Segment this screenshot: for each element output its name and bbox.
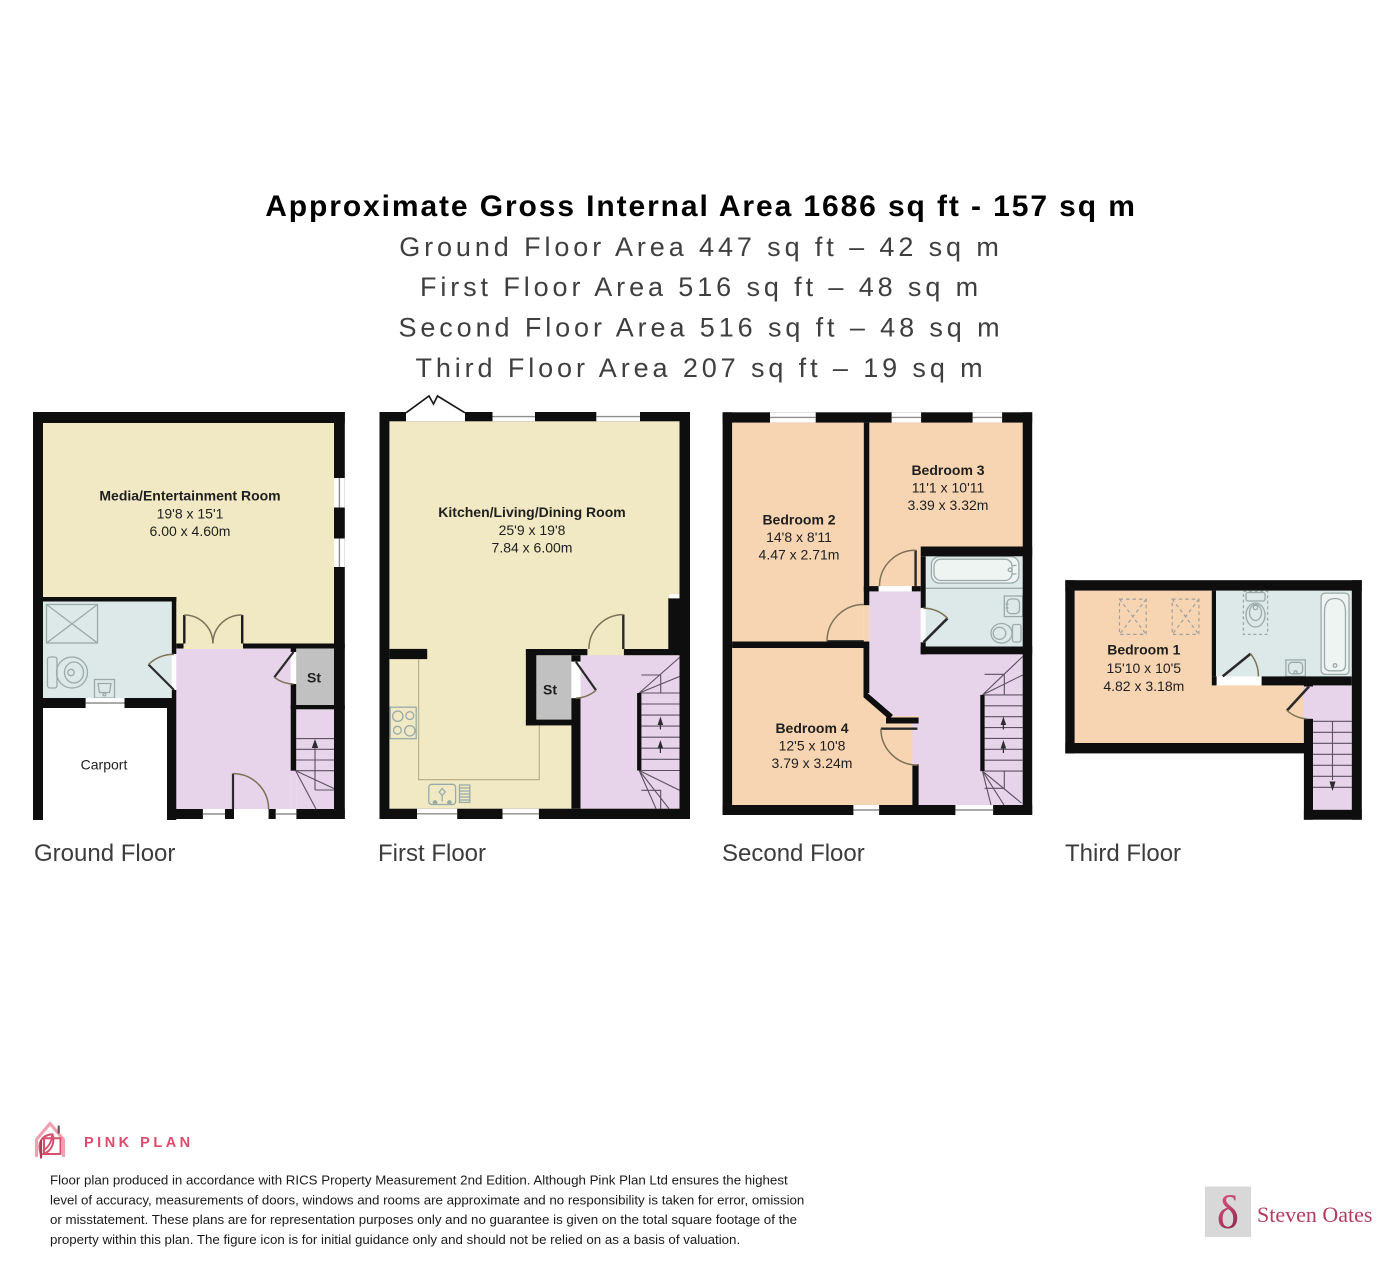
svg-text:15'10 x 10'5: 15'10 x 10'5 <box>1106 660 1181 676</box>
svg-text:14'8 x 8'11: 14'8 x 8'11 <box>766 529 832 545</box>
svg-text:δ: δ <box>1217 1187 1239 1239</box>
svg-text:First Floor: First Floor <box>378 840 486 867</box>
svg-text:7.84 x 6.00m: 7.84 x 6.00m <box>492 540 573 556</box>
svg-text:Third Floor: Third Floor <box>1065 840 1181 867</box>
svg-text:3.79 x 3.24m: 3.79 x 3.24m <box>772 755 853 771</box>
svg-text:Bedroom 4: Bedroom 4 <box>775 720 848 736</box>
svg-text:Carport: Carport <box>81 757 128 773</box>
svg-text:Floor plan produced in accorda: Floor plan produced in accordance with R… <box>50 1173 788 1188</box>
svg-text:Kitchen/Living/Dining Room: Kitchen/Living/Dining Room <box>438 504 625 520</box>
svg-text:PINK PLAN: PINK PLAN <box>84 1135 194 1151</box>
svg-text:Second Floor Area 516 sq ft –: Second Floor Area 516 sq ft – 48 sq m <box>398 313 1003 343</box>
svg-text:Bedroom 1: Bedroom 1 <box>1107 642 1180 658</box>
svg-text:St: St <box>307 670 321 686</box>
svg-text:Media/Entertainment Room: Media/Entertainment Room <box>99 488 280 504</box>
svg-text:Second Floor: Second Floor <box>722 840 865 867</box>
svg-text:12'5 x 10'8: 12'5 x 10'8 <box>779 738 846 754</box>
svg-text:St: St <box>543 682 557 698</box>
svg-text:level of accuracy, measurement: level of accuracy, measurements of doors… <box>50 1192 804 1207</box>
svg-text:Approximate Gross Internal Are: Approximate Gross Internal Area 1686 sq … <box>265 190 1137 223</box>
svg-text:4.82 x 3.18m: 4.82 x 3.18m <box>1103 678 1184 694</box>
svg-text:3.39 x 3.32m: 3.39 x 3.32m <box>908 497 989 513</box>
svg-text:property within this plan. The: property within this plan. The figure ic… <box>50 1232 740 1247</box>
svg-text:or misstatement. These plans a: or misstatement. These plans are for rep… <box>50 1212 797 1227</box>
svg-text:Bedroom 2: Bedroom 2 <box>762 512 835 528</box>
svg-text:25'9 x 19'8: 25'9 x 19'8 <box>499 522 566 538</box>
svg-text:Third Floor Area 207 sq ft – 1: Third Floor Area 207 sq ft – 19 sq m <box>415 353 986 383</box>
svg-text:Steven Oates: Steven Oates <box>1257 1202 1372 1227</box>
svg-text:6.00 x 4.60m: 6.00 x 4.60m <box>150 523 231 539</box>
svg-text:11'1 x 10'11: 11'1 x 10'11 <box>912 480 985 496</box>
svg-text:4.47 x 2.71m: 4.47 x 2.71m <box>759 547 840 563</box>
svg-text:19'8 x 15'1: 19'8 x 15'1 <box>157 506 224 522</box>
svg-text:First Floor Area 516 sq ft – 4: First Floor Area 516 sq ft – 48 sq m <box>420 272 982 302</box>
svg-text:Ground Floor: Ground Floor <box>34 840 175 867</box>
svg-text:Ground Floor Area 447 sq ft –: Ground Floor Area 447 sq ft – 42 sq m <box>399 232 1003 262</box>
svg-text:Bedroom 3: Bedroom 3 <box>911 462 984 478</box>
